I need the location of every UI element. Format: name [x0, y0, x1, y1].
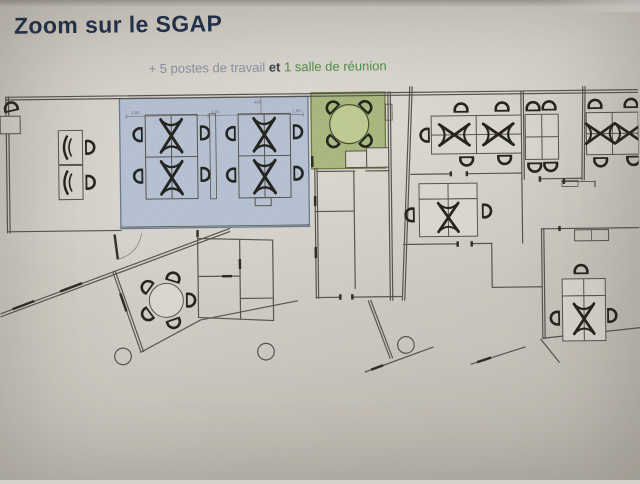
- chair-icon: [453, 103, 468, 111]
- chair-icon: [587, 100, 602, 108]
- chair-icon: [421, 128, 429, 143]
- chair-icon: [483, 203, 491, 218]
- chair-icon: [86, 175, 94, 190]
- chair-icon: [406, 207, 414, 222]
- chair-icon: [3, 101, 19, 112]
- workstation-single: [58, 130, 94, 164]
- chair-icon: [593, 158, 608, 166]
- floor-plan: 1,00 1,04 1,00 400: [0, 0, 640, 484]
- workstation-pod: [550, 265, 616, 342]
- chair-icon: [459, 157, 474, 165]
- chair-icon: [541, 101, 556, 109]
- chair-icon: [187, 293, 195, 308]
- photographed-slide: { "slide": { "title": "Zoom sur le SGAP"…: [0, 0, 640, 480]
- corner-desk: [0, 101, 20, 134]
- chair-icon: [86, 140, 94, 155]
- workstation-single: [59, 165, 95, 199]
- slide-content: Zoom sur le SGAP + 5 postes de travail e…: [0, 0, 640, 484]
- column: [258, 343, 275, 360]
- chair-icon: [551, 311, 559, 326]
- round-table-group: [138, 270, 195, 330]
- chair-icon: [623, 99, 638, 107]
- chair-icon: [573, 265, 588, 273]
- dimension-label: 1,00: [292, 108, 301, 113]
- workstation-pod: [586, 99, 640, 167]
- column: [398, 337, 415, 354]
- chair-icon: [165, 271, 182, 283]
- chair-icon: [497, 156, 512, 164]
- chair-icon: [608, 308, 616, 323]
- column: [115, 348, 132, 365]
- dimension-label: 400: [254, 100, 262, 105]
- chair-icon: [166, 317, 183, 330]
- workstation-pod: [420, 102, 521, 166]
- meeting-table: [525, 101, 559, 171]
- chair-icon: [525, 102, 540, 110]
- chair-icon: [543, 163, 558, 171]
- workstation-pod: [405, 183, 491, 237]
- chair-icon: [494, 102, 509, 110]
- paper-corner-highlight: [530, 0, 640, 12]
- dimension-label: 1,00: [131, 110, 140, 115]
- chair-icon: [527, 163, 542, 171]
- chair-icon: [626, 157, 640, 165]
